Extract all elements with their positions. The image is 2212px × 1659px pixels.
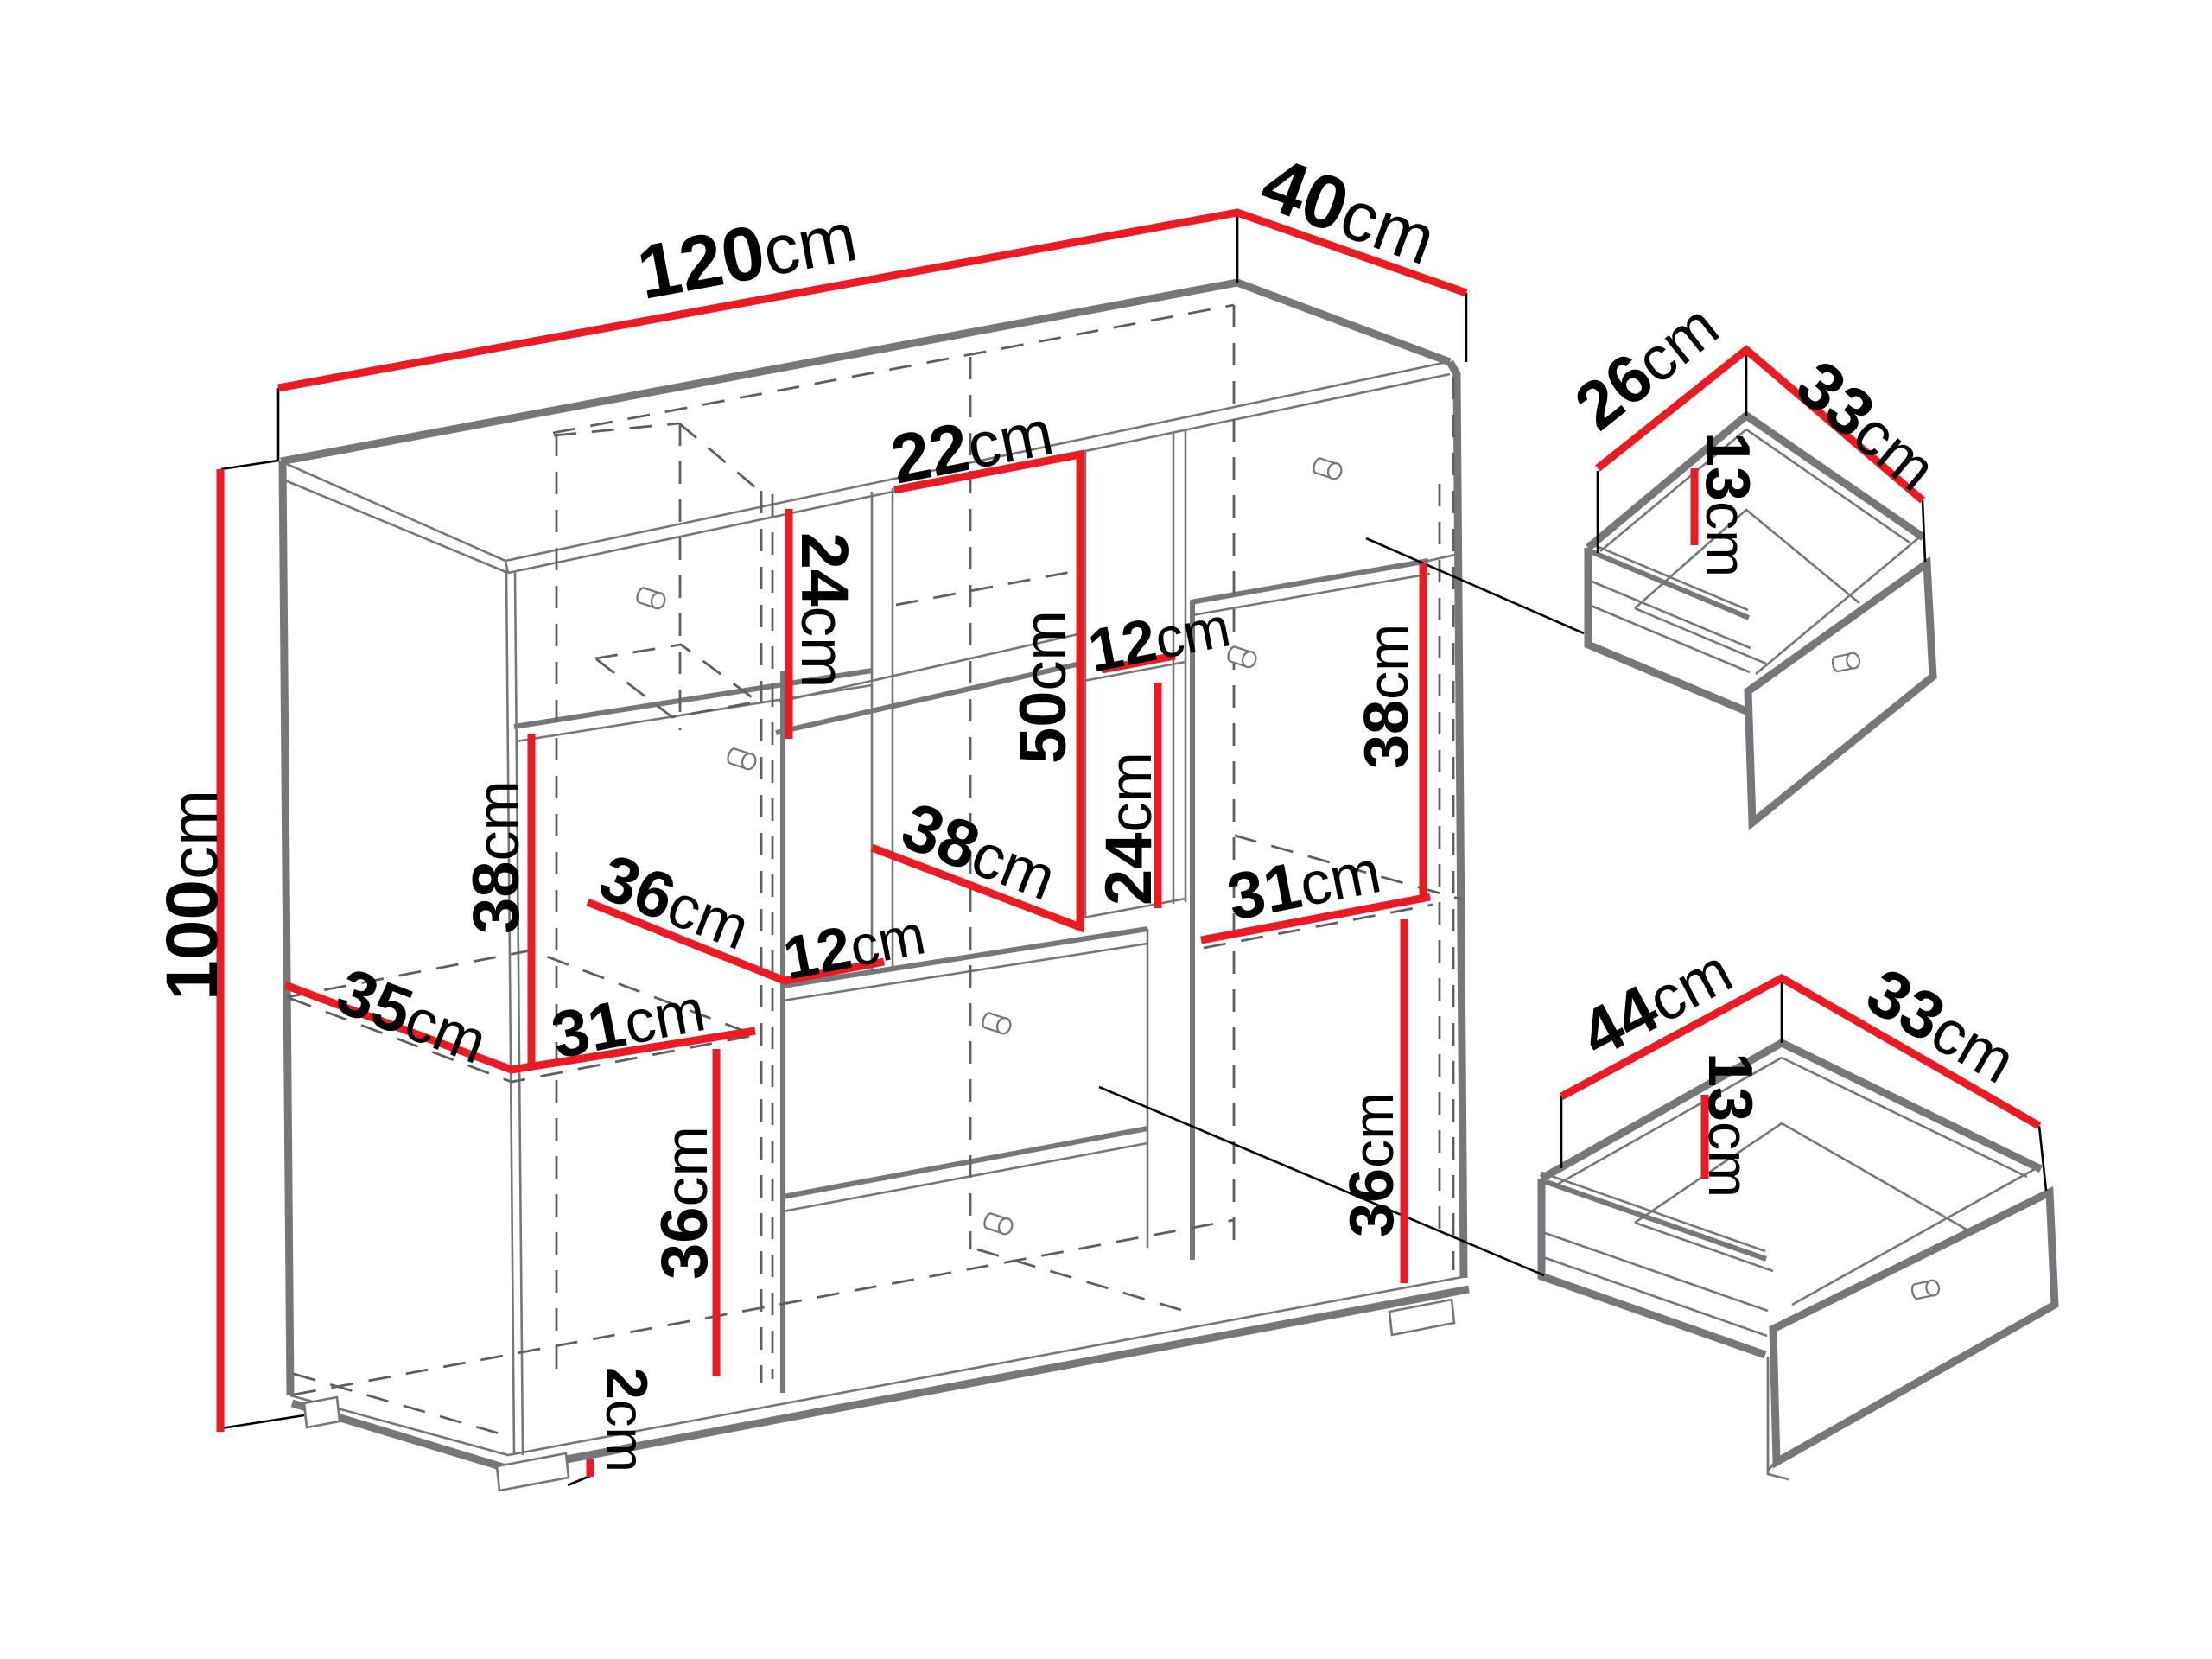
svg-text:13cm: 13cm (1693, 432, 1762, 577)
svg-text:36cm: 36cm (1338, 1092, 1407, 1237)
svg-text:38cm: 38cm (1352, 624, 1421, 769)
svg-text:50cm: 50cm (1007, 610, 1080, 764)
svg-text:24cm: 24cm (787, 532, 861, 688)
svg-text:38cm: 38cm (460, 780, 533, 934)
svg-text:36cm: 36cm (648, 1126, 721, 1280)
svg-text:13cm: 13cm (1695, 1052, 1764, 1198)
svg-text:100cm: 100cm (151, 790, 232, 1001)
svg-text:24cm: 24cm (1092, 752, 1166, 906)
svg-text:2cm: 2cm (594, 1367, 659, 1472)
